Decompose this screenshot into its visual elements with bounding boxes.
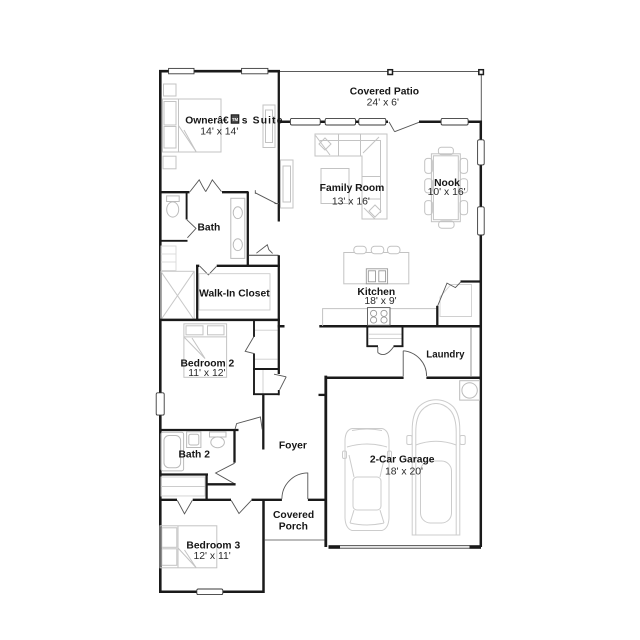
svg-text:10' x 16': 10' x 16' — [428, 187, 466, 198]
svg-text:Walk-In Closet: Walk-In Closet — [199, 289, 270, 300]
svg-text:TM: TM — [232, 117, 239, 122]
svg-text:Foyer: Foyer — [279, 441, 307, 452]
svg-text:Bath 2: Bath 2 — [178, 450, 210, 461]
svg-text:Bedroom 3: Bedroom 3 — [186, 540, 240, 551]
svg-text:24' x 6': 24' x 6' — [367, 98, 399, 109]
svg-text:Bath: Bath — [197, 223, 220, 234]
svg-text:Family Room: Family Room — [320, 183, 385, 194]
svg-text:14' x 14': 14' x 14' — [200, 127, 238, 138]
svg-text:s Suite: s Suite — [242, 116, 284, 127]
svg-text:11' x 12': 11' x 12' — [188, 368, 225, 379]
svg-text:Laundry: Laundry — [426, 350, 465, 361]
svg-text:12' x 11': 12' x 11' — [193, 551, 230, 562]
svg-text:18' x 9': 18' x 9' — [364, 296, 396, 307]
svg-text:13' x 16': 13' x 16' — [332, 196, 370, 207]
svg-text:Covered: Covered — [273, 510, 314, 521]
svg-text:Ownerâ€: Ownerâ€ — [185, 116, 229, 127]
svg-text:2-Car Garage: 2-Car Garage — [370, 454, 435, 465]
svg-text:Covered Patio: Covered Patio — [350, 87, 419, 98]
svg-text:Porch: Porch — [279, 522, 308, 533]
svg-text:18' x 20': 18' x 20' — [385, 466, 423, 477]
